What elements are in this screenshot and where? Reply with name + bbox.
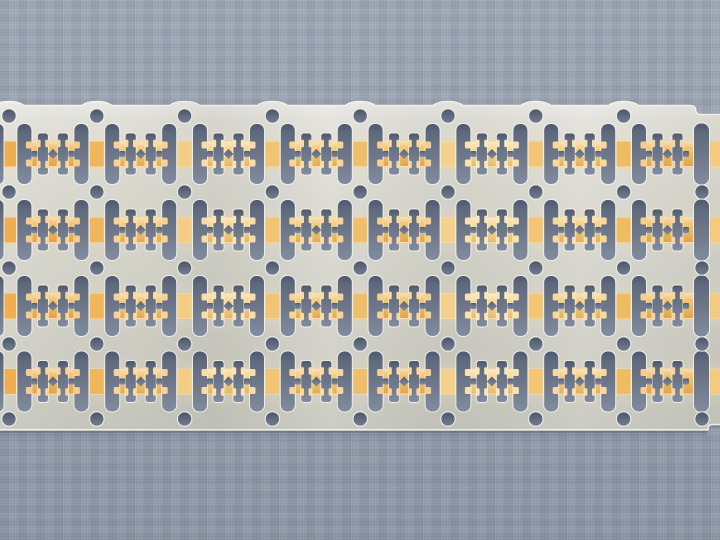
inner-lead-slot <box>233 209 244 251</box>
sprocket-hole <box>177 185 191 199</box>
lead-slot <box>105 200 120 261</box>
inner-lead-slot <box>496 361 507 403</box>
lead-waist-plating <box>153 292 157 299</box>
inner-lead-slot <box>564 209 575 251</box>
lead-waist-plating <box>300 237 304 244</box>
lead-slot <box>280 200 295 261</box>
inner-lead-slot <box>409 209 420 251</box>
lead-waist-plating <box>232 388 236 395</box>
inner-lead-slot <box>389 285 400 327</box>
lead-waist-plating <box>57 161 61 168</box>
lead-slot <box>337 276 352 337</box>
lead-waist-plating <box>221 388 225 395</box>
sprocket-hole <box>90 337 104 351</box>
gold-lead-tab <box>289 142 296 149</box>
gold-lead-tab <box>26 142 33 149</box>
inner-lead-slot <box>301 209 312 251</box>
lead-waist-plating <box>145 140 149 147</box>
gold-lead-tab <box>202 218 209 225</box>
lead-slot <box>513 200 528 261</box>
lead-waist-plating <box>145 292 149 299</box>
gold-lead-tab <box>512 294 519 301</box>
gold-lead-tab <box>73 387 80 394</box>
gold-lead-tab <box>73 142 80 149</box>
lead-waist-plating <box>396 292 400 299</box>
lead-waist-plating <box>476 140 480 147</box>
gap-notch <box>383 227 389 233</box>
gold-lead-tab <box>377 387 384 394</box>
gold-lead-tab <box>600 160 607 167</box>
lead-waist-plating <box>408 388 412 395</box>
gold-lead-tab <box>249 387 256 394</box>
inner-lead-slot <box>584 133 595 175</box>
gap-notch <box>558 379 564 385</box>
gap-notch <box>244 151 250 157</box>
gold-lead-tab <box>641 369 648 376</box>
inner-lead-slot <box>672 209 683 251</box>
lead-slot <box>74 351 89 412</box>
gold-lead-tab <box>114 160 121 167</box>
sprocket-hole <box>2 337 16 351</box>
macro-photo-lead-frame <box>0 0 720 540</box>
gold-lead-tab <box>641 387 648 394</box>
gold-lead-tab <box>202 312 209 319</box>
lead-waist-plating <box>408 161 412 168</box>
lead-waist-plating <box>125 313 129 320</box>
lead-slot <box>425 276 440 337</box>
lead-slot <box>250 351 265 412</box>
lead-slot <box>632 124 647 185</box>
lead-waist-plating <box>396 388 400 395</box>
lead-slot <box>162 351 177 412</box>
gold-lead-tab <box>600 218 607 225</box>
rail-plating-patch <box>529 294 543 319</box>
inner-lead-slot <box>37 361 48 403</box>
lead-waist-plating <box>329 161 333 168</box>
gold-lead-tab <box>512 369 519 376</box>
gold-lead-tab <box>465 142 472 149</box>
lead-slot <box>513 276 528 337</box>
inner-lead-slot <box>584 285 595 327</box>
gap-notch <box>595 151 601 157</box>
rail-plating-patch <box>90 142 104 167</box>
sprocket-hole <box>441 337 455 351</box>
lead-waist-plating <box>496 313 500 320</box>
lead-slot <box>193 276 208 337</box>
lead-waist-plating <box>57 367 61 374</box>
inner-lead-slot <box>476 285 487 327</box>
lead-waist-plating <box>125 140 129 147</box>
lead-slot <box>280 276 295 337</box>
lead-waist-plating <box>388 237 392 244</box>
inner-lead-slot <box>213 209 224 251</box>
lead-slot <box>17 200 32 261</box>
gold-lead-tab <box>73 369 80 376</box>
lead-waist-plating <box>329 237 333 244</box>
sprocket-hole <box>2 261 16 275</box>
gap-notch <box>295 227 301 233</box>
inner-lead-slot <box>496 209 507 251</box>
lead-waist-plating <box>671 140 675 147</box>
lead-waist-plating <box>300 388 304 395</box>
lead-slot <box>193 200 208 261</box>
lead-waist-plating <box>57 216 61 223</box>
lead-waist-plating <box>396 161 400 168</box>
lead-waist-plating <box>37 161 41 168</box>
lead-slot <box>105 124 120 185</box>
lead-waist-plating <box>476 313 480 320</box>
lead-waist-plating <box>145 388 149 395</box>
lead-waist-plating <box>45 161 49 168</box>
rail-plating-patch <box>617 369 631 394</box>
sprocket-hole <box>616 261 630 275</box>
lead-waist-plating <box>496 367 500 374</box>
lead-waist-plating <box>145 216 149 223</box>
sprocket-hole <box>265 109 279 123</box>
lead-waist-plating <box>671 161 675 168</box>
lead-slot <box>105 351 120 412</box>
gold-lead-tab <box>425 387 432 394</box>
lead-waist-plating <box>221 237 225 244</box>
lead-waist-plating <box>212 140 216 147</box>
lead-slot <box>632 276 647 337</box>
edge-partial-slot <box>0 124 4 185</box>
gold-lead-tab <box>114 218 121 225</box>
gold-lead-tab <box>641 312 648 319</box>
gap-notch <box>156 151 162 157</box>
lead-waist-plating <box>584 237 588 244</box>
inner-lead-slot <box>301 133 312 175</box>
gold-lead-tab <box>289 369 296 376</box>
sprocket-hole <box>529 261 543 275</box>
rail-plating-patch <box>617 218 631 243</box>
lead-waist-plating <box>651 140 655 147</box>
lead-waist-plating <box>564 367 568 374</box>
sprocket-hole <box>90 261 104 275</box>
lead-waist-plating <box>592 292 596 299</box>
gap-notch <box>470 151 476 157</box>
inner-lead-slot <box>564 361 575 403</box>
gap-notch <box>507 151 513 157</box>
gold-lead-tab <box>377 218 384 225</box>
lead-waist-plating <box>396 140 400 147</box>
gold-lead-tab <box>73 218 80 225</box>
inner-lead-slot <box>476 133 487 175</box>
lead-waist-plating <box>592 388 596 395</box>
lead-waist-plating <box>564 313 568 320</box>
lead-waist-plating <box>651 313 655 320</box>
bottom-shadow-soft <box>0 431 707 437</box>
gold-lead-tab <box>114 369 121 376</box>
rail-plating-patch <box>265 142 279 167</box>
lead-slot <box>544 351 559 412</box>
lead-slot <box>280 124 295 185</box>
lead-slot <box>193 351 208 412</box>
edge-partial-slot <box>0 200 4 261</box>
gold-lead-tab <box>26 312 33 319</box>
lead-waist-plating <box>221 292 225 299</box>
gap-notch <box>332 303 338 309</box>
lead-slot <box>513 351 528 412</box>
gold-lead-tab <box>161 369 168 376</box>
lead-waist-plating <box>57 388 61 395</box>
gap-notch <box>244 303 250 309</box>
gold-lead-tab <box>249 312 256 319</box>
gap-notch <box>68 303 74 309</box>
gold-lead-tab <box>600 294 607 301</box>
lead-waist-plating <box>221 161 225 168</box>
inner-lead-slot <box>57 133 68 175</box>
lead-waist-plating <box>133 216 137 223</box>
gap-notch <box>332 227 338 233</box>
lead-waist-plating <box>651 388 655 395</box>
lead-waist-plating <box>388 292 392 299</box>
rail-plating-patch <box>709 142 720 167</box>
gold-lead-tab <box>337 312 344 319</box>
sprocket-hole <box>616 337 630 351</box>
lead-waist-plating <box>232 367 236 374</box>
lead-waist-plating <box>133 292 137 299</box>
rail-plating-patch <box>441 142 455 167</box>
inner-lead-slot <box>496 133 507 175</box>
gap-notch <box>31 151 37 157</box>
lead-waist-plating <box>680 216 684 223</box>
lead-slot <box>280 351 295 412</box>
lead-waist-plating <box>309 313 313 320</box>
lead-waist-plating <box>329 216 333 223</box>
lead-slot <box>544 276 559 337</box>
gap-notch <box>332 379 338 385</box>
lead-waist-plating <box>651 367 655 374</box>
rail-plating-patch <box>353 294 367 319</box>
lead-waist-plating <box>564 292 568 299</box>
gold-lead-tab <box>114 236 121 243</box>
gold-lead-tab <box>553 387 560 394</box>
lead-slot <box>74 276 89 337</box>
sprocket-hole <box>695 185 709 199</box>
gap-notch <box>683 151 689 157</box>
lead-waist-plating <box>65 216 69 223</box>
gold-lead-tab <box>161 218 168 225</box>
sprocket-hole <box>529 109 543 123</box>
rail-plating-patch <box>90 294 104 319</box>
rail-plating-patch <box>441 369 455 394</box>
lead-waist-plating <box>592 140 596 147</box>
lead-waist-plating <box>309 367 313 374</box>
gap-notch <box>207 227 213 233</box>
lead-waist-plating <box>416 161 420 168</box>
rail-plating-patch <box>353 218 367 243</box>
inner-lead-slot <box>125 209 136 251</box>
gold-lead-tab <box>202 294 209 301</box>
gap-notch <box>156 227 162 233</box>
lead-waist-plating <box>133 313 137 320</box>
gold-lead-tab <box>425 312 432 319</box>
sprocket-hole <box>265 185 279 199</box>
gold-lead-tab <box>553 312 560 319</box>
rail-plating-patch <box>529 369 543 394</box>
gap-notch <box>470 227 476 233</box>
lead-waist-plating <box>564 140 568 147</box>
gap-notch <box>383 151 389 157</box>
lead-waist-plating <box>504 367 508 374</box>
lead-slot <box>513 124 528 185</box>
gold-lead-tab <box>161 387 168 394</box>
lead-slot <box>601 124 616 185</box>
inner-lead-slot <box>125 285 136 327</box>
gap-notch <box>470 303 476 309</box>
lead-waist-plating <box>476 237 480 244</box>
gold-lead-tab <box>202 369 209 376</box>
gold-lead-tab <box>512 218 519 225</box>
lead-waist-plating <box>660 313 664 320</box>
lead-waist-plating <box>45 216 49 223</box>
lead-waist-plating <box>584 161 588 168</box>
gold-lead-tab <box>202 236 209 243</box>
gap-notch <box>244 379 250 385</box>
lead-waist-plating <box>484 140 488 147</box>
lead-waist-plating <box>572 292 576 299</box>
gap-notch <box>156 379 162 385</box>
sprocket-hole <box>265 337 279 351</box>
gold-lead-tab <box>553 236 560 243</box>
lead-waist-plating <box>660 367 664 374</box>
sprocket-hole <box>529 337 543 351</box>
lead-waist-plating <box>232 237 236 244</box>
gold-lead-tab <box>249 236 256 243</box>
gold-lead-tab <box>114 142 121 149</box>
lead-waist-plating <box>212 292 216 299</box>
lead-waist-plating <box>241 292 245 299</box>
lead-waist-plating <box>504 161 508 168</box>
sprocket-hole <box>616 185 630 199</box>
gap-notch <box>646 151 652 157</box>
inner-lead-slot <box>476 209 487 251</box>
lead-waist-plating <box>329 140 333 147</box>
lead-waist-plating <box>329 388 333 395</box>
gold-lead-tab <box>377 142 384 149</box>
gold-lead-tab <box>289 294 296 301</box>
sprocket-hole <box>529 185 543 199</box>
gap-notch <box>595 303 601 309</box>
rail-plating-patch <box>709 294 720 319</box>
gold-lead-tab <box>26 218 33 225</box>
inner-lead-slot <box>301 285 312 327</box>
lead-waist-plating <box>504 313 508 320</box>
lead-waist-plating <box>232 313 236 320</box>
lead-slot <box>17 276 32 337</box>
lead-waist-plating <box>221 140 225 147</box>
lead-waist-plating <box>660 388 664 395</box>
lead-waist-plating <box>476 292 480 299</box>
gold-lead-tab <box>161 312 168 319</box>
gold-lead-tab <box>73 312 80 319</box>
lead-waist-plating <box>496 216 500 223</box>
lead-waist-plating <box>329 292 333 299</box>
gap-notch <box>31 303 37 309</box>
lead-waist-plating <box>133 367 137 374</box>
sprocket-hole <box>2 185 16 199</box>
lead-waist-plating <box>671 388 675 395</box>
rail-plating-patch <box>265 369 279 394</box>
gap-notch <box>207 151 213 157</box>
gold-lead-tab <box>161 294 168 301</box>
gold-lead-tab <box>465 312 472 319</box>
lead-waist-plating <box>153 367 157 374</box>
inner-lead-slot <box>321 285 332 327</box>
lead-waist-plating <box>388 388 392 395</box>
gold-lead-tab <box>465 387 472 394</box>
lead-waist-plating <box>45 292 49 299</box>
sprocket-hole <box>695 337 709 351</box>
gold-lead-tab <box>553 218 560 225</box>
sprocket-hole <box>441 109 455 123</box>
inner-lead-slot <box>213 285 224 327</box>
lead-waist-plating <box>572 161 576 168</box>
lead-waist-plating <box>45 367 49 374</box>
lead-waist-plating <box>232 161 236 168</box>
lead-waist-plating <box>660 292 664 299</box>
lead-waist-plating <box>564 216 568 223</box>
rail-plating-patch <box>90 218 104 243</box>
lead-waist-plating <box>45 140 49 147</box>
lead-waist-plating <box>212 216 216 223</box>
lead-slot <box>544 200 559 261</box>
lead-waist-plating <box>309 388 313 395</box>
lead-waist-plating <box>320 140 324 147</box>
gold-lead-tab <box>249 160 256 167</box>
rail-plating-patch <box>90 369 104 394</box>
lead-waist-plating <box>496 161 500 168</box>
sprocket-hole <box>177 261 191 275</box>
lead-slot <box>425 351 440 412</box>
gold-lead-tab <box>73 236 80 243</box>
lead-waist-plating <box>125 237 129 244</box>
lead-waist-plating <box>484 161 488 168</box>
lead-waist-plating <box>37 216 41 223</box>
lead-waist-plating <box>153 161 157 168</box>
inner-lead-slot <box>652 133 663 175</box>
sprocket-hole <box>177 337 191 351</box>
rail-plating-patch <box>265 218 279 243</box>
lead-waist-plating <box>504 237 508 244</box>
lead-waist-plating <box>592 367 596 374</box>
lead-waist-plating <box>388 367 392 374</box>
edge-partial-slot <box>0 351 4 412</box>
sprocket-hole <box>695 412 709 426</box>
inner-lead-slot <box>37 285 48 327</box>
gold-lead-tab <box>289 312 296 319</box>
lead-waist-plating <box>57 292 61 299</box>
edge-partial-slot <box>0 276 4 337</box>
gold-lead-tab <box>512 312 519 319</box>
lead-slot <box>162 276 177 337</box>
gold-lead-tab <box>337 236 344 243</box>
lead-waist-plating <box>584 388 588 395</box>
inner-lead-slot <box>37 133 48 175</box>
inner-lead-slot <box>321 209 332 251</box>
inner-lead-slot <box>213 361 224 403</box>
gold-lead-tab <box>512 387 519 394</box>
lead-waist-plating <box>221 313 225 320</box>
gap-notch <box>558 303 564 309</box>
lead-waist-plating <box>484 367 488 374</box>
gold-lead-tab <box>425 142 432 149</box>
lead-waist-plating <box>65 140 69 147</box>
gap-notch <box>383 303 389 309</box>
lead-waist-plating <box>153 140 157 147</box>
lead-waist-plating <box>680 313 684 320</box>
